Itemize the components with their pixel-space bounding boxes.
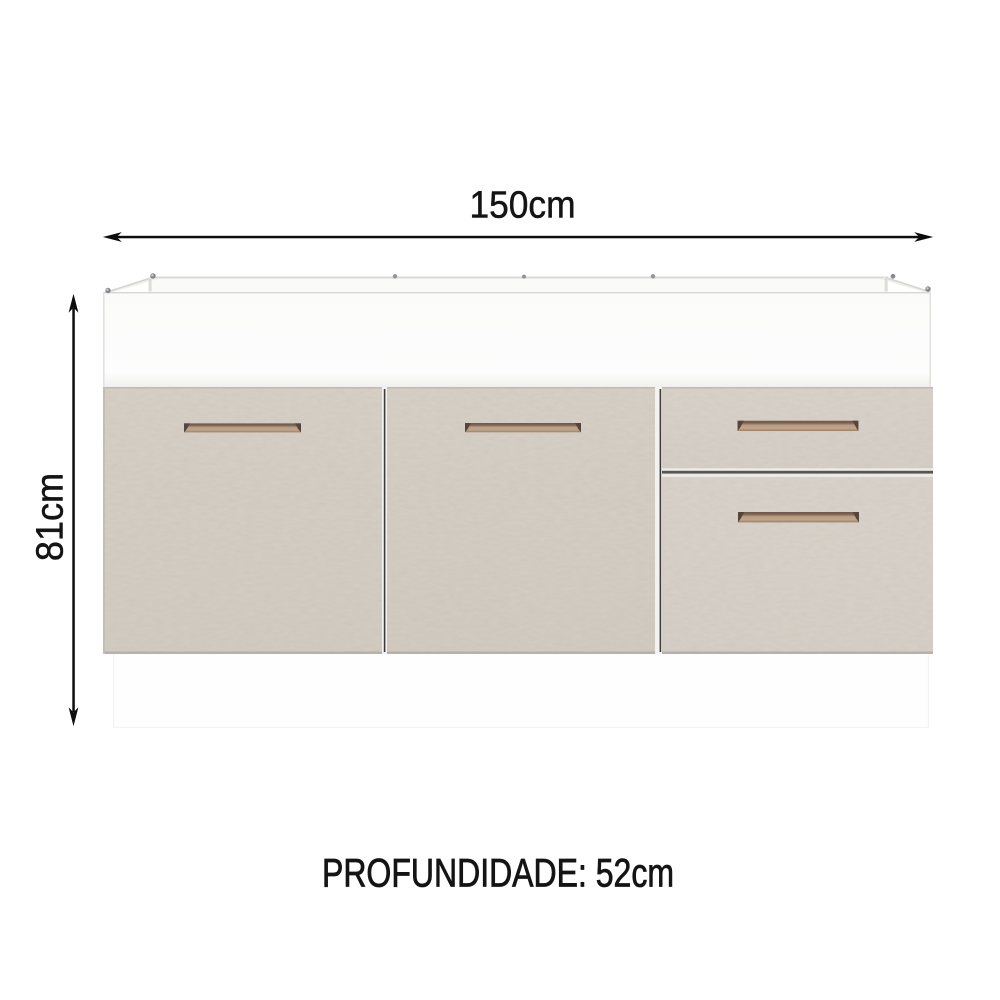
svg-text:81cm: 81cm [28,473,71,561]
svg-text:150cm: 150cm [469,183,575,225]
svg-text:PROFUNDIDADE: 52cm: PROFUNDIDADE: 52cm [322,850,674,895]
